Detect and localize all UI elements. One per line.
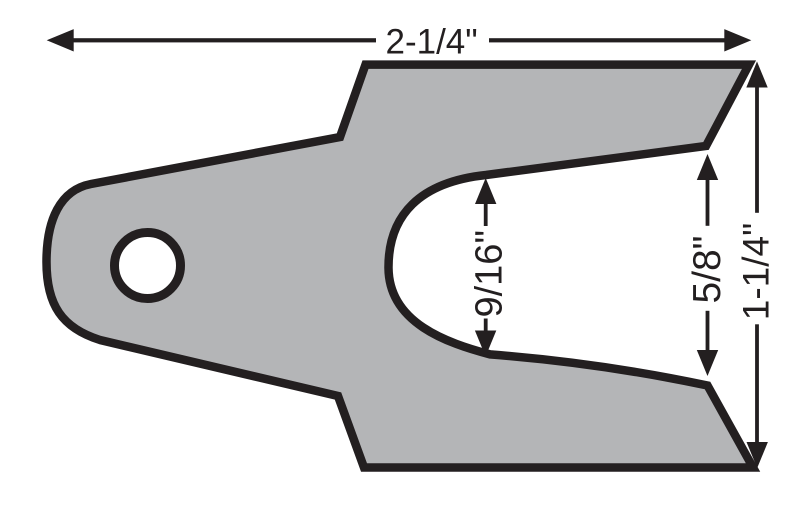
svg-text:1-1/4": 1-1/4" [736,223,777,320]
svg-text:9/16": 9/16" [469,230,511,317]
svg-text:5/8": 5/8" [686,235,729,303]
svg-text:2-1/4": 2-1/4" [386,23,478,62]
